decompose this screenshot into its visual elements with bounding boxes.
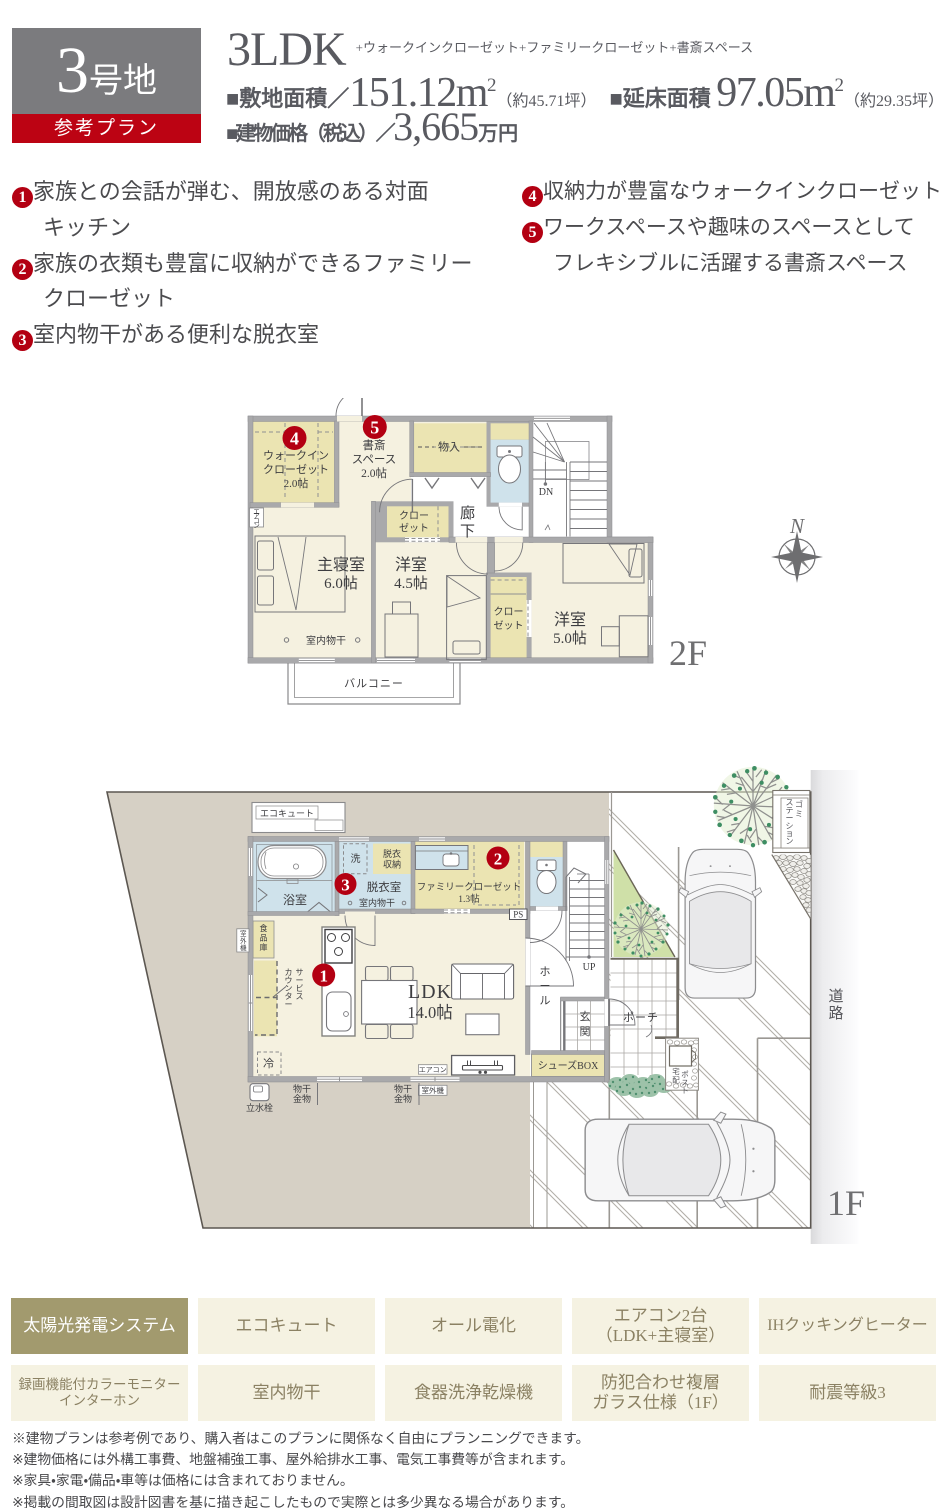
svg-text:2: 2 <box>494 849 503 868</box>
svg-text:室外機: 室外機 <box>421 1085 444 1095</box>
svg-text:ファミリークローゼット: ファミリークローゼット <box>417 881 522 893</box>
svg-text:室内物干: 室内物干 <box>306 634 346 647</box>
svg-text:2.0帖: 2.0帖 <box>361 466 387 480</box>
svg-text:UP: UP <box>583 962 596 973</box>
svg-text:室内物干: 室内物干 <box>359 897 395 908</box>
svg-text:3: 3 <box>341 875 350 894</box>
svg-text:物入: 物入 <box>438 440 460 454</box>
svg-text:2F: 2F <box>669 633 707 673</box>
svg-text:洋室: 洋室 <box>554 611 586 629</box>
svg-text:金物: 金物 <box>293 1093 311 1104</box>
svg-text:5.0帖: 5.0帖 <box>553 630 587 647</box>
svg-text:主寝室: 主寝室 <box>317 556 365 574</box>
svg-text:廊: 廊 <box>460 505 475 522</box>
svg-text:収納: 収納 <box>383 859 401 870</box>
svg-text:4: 4 <box>290 429 299 449</box>
svg-text:6.0帖: 6.0帖 <box>324 575 358 592</box>
svg-text:ホール: ホール <box>540 965 551 1007</box>
svg-text:1: 1 <box>319 966 328 985</box>
svg-text:LDK: LDK <box>408 981 452 1003</box>
svg-text:バルコニー: バルコニー <box>344 677 404 690</box>
svg-text:1.3帖: 1.3帖 <box>458 893 480 905</box>
svg-text:ゼット: ゼット <box>399 523 429 535</box>
svg-text:冷: 冷 <box>263 1057 274 1070</box>
svg-text:下: 下 <box>460 524 475 540</box>
svg-text:4.5帖: 4.5帖 <box>394 575 428 592</box>
svg-text:2.0帖: 2.0帖 <box>284 477 309 490</box>
svg-text:クロー: クロー <box>494 606 524 618</box>
svg-text:洋室: 洋室 <box>395 556 427 574</box>
svg-text:脱衣室: 脱衣室 <box>367 880 402 894</box>
svg-text:室外機: 室外機 <box>240 929 247 953</box>
svg-text:シューズBOX: シューズBOX <box>538 1059 599 1072</box>
svg-text:ゼット: ゼット <box>494 620 524 632</box>
svg-text:脱衣: 脱衣 <box>383 848 401 859</box>
svg-text:ポーチ: ポーチ <box>623 1011 659 1024</box>
svg-text:PS: PS <box>513 910 523 920</box>
svg-text:スペース: スペース <box>352 454 397 466</box>
svg-text:エアコン: エアコン <box>253 509 260 530</box>
svg-text:ポスト: ポスト <box>681 1070 689 1095</box>
svg-text:N: N <box>789 514 805 538</box>
svg-text:物干: 物干 <box>394 1083 412 1094</box>
svg-text:食品庫: 食品庫 <box>260 924 268 952</box>
svg-text:14.0帖: 14.0帖 <box>407 1003 452 1022</box>
svg-text:5: 5 <box>370 418 379 438</box>
svg-text:宅配: 宅配 <box>672 1067 680 1085</box>
svg-text:サービス: サービス <box>296 968 304 1001</box>
svg-text:書斎: 書斎 <box>363 438 386 452</box>
svg-text:エコキュート: エコキュート <box>260 809 314 819</box>
svg-text:ゴミ: ゴミ <box>795 799 803 819</box>
svg-text:ウォークイン: ウォークイン <box>263 449 329 462</box>
svg-text:カウンター: カウンター <box>285 968 293 1009</box>
svg-text:金物: 金物 <box>394 1093 412 1104</box>
svg-text:浴室: 浴室 <box>283 893 307 907</box>
svg-text:クローゼット: クローゼット <box>263 463 329 476</box>
svg-text:物干: 物干 <box>293 1083 311 1094</box>
svg-text:DN: DN <box>539 487 553 498</box>
svg-text:クロー: クロー <box>399 510 429 522</box>
svg-text:立水栓: 立水栓 <box>246 1102 273 1113</box>
svg-text:1F: 1F <box>827 1183 865 1223</box>
svg-text:洗: 洗 <box>351 853 361 865</box>
svg-text:ステーション: ステーション <box>786 798 794 846</box>
svg-text:エアコン: エアコン <box>419 1066 447 1074</box>
